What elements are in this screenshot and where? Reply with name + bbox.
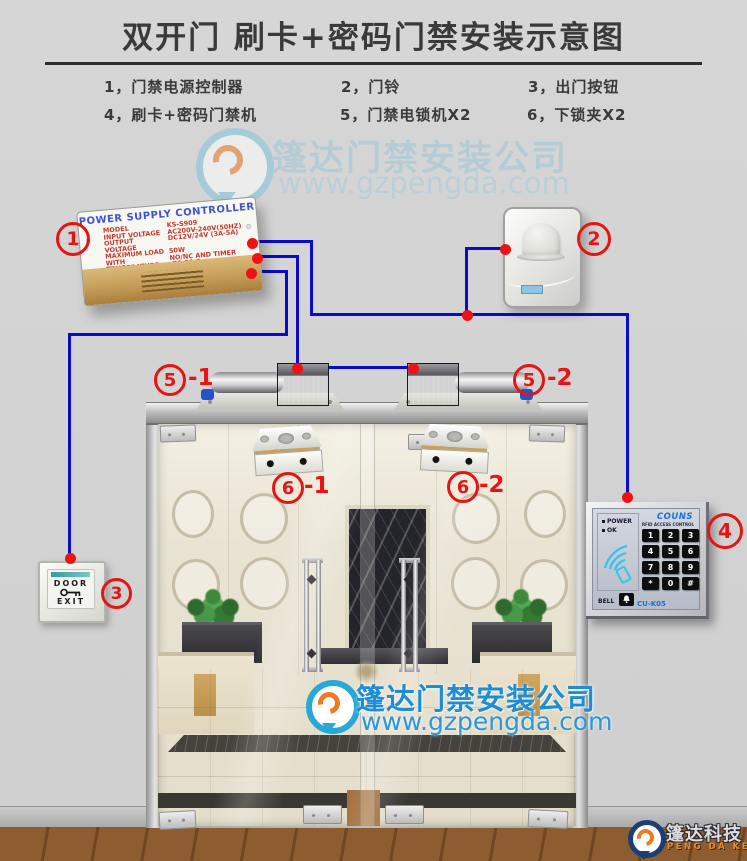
label-1: 1: [56, 222, 90, 256]
wire-doorbell-keypad: [252, 240, 313, 243]
label-6-2-suffix: -2: [479, 472, 505, 498]
glass-corner-patch: [385, 805, 424, 824]
key-3: 3: [682, 529, 699, 542]
clamp-hole: [432, 456, 439, 463]
under-lock-clamp-left: [250, 425, 323, 479]
keypad-reader-zone: POWER OK: [597, 513, 639, 591]
label-3: 3: [101, 578, 132, 609]
label-6-1-suffix: -1: [304, 473, 330, 499]
power-supply-controller: POWER SUPPLY CONTROLLER MODELKS-S909 INP…: [76, 196, 264, 306]
rfid-swipe-icon: [601, 540, 635, 584]
wire-segment: [68, 333, 71, 559]
clamp-hole: [260, 435, 269, 443]
watermark-top: 篷达门禁安装公司 www.gzpengda.com: [188, 126, 608, 200]
wire-segment: [296, 255, 299, 369]
label-5-1: 5: [154, 364, 186, 396]
watermark-url: www.gzpengda.com: [278, 166, 570, 200]
keypad-bell-key: [619, 593, 634, 606]
key-2: 2: [662, 529, 679, 542]
wire-terminal-dot-lock-right: [408, 363, 419, 374]
legend-item-3: 3，出门按钮: [528, 76, 619, 97]
key-9: 9: [682, 561, 699, 574]
key-8: 8: [662, 561, 679, 574]
screw-icon: [208, 400, 212, 404]
clamp-hole: [299, 458, 306, 465]
legend-item-6: 6，下锁夹X2: [527, 104, 626, 125]
bell-base: [517, 253, 565, 261]
wire-segment: [465, 247, 468, 316]
keypad-model: CU-K05: [637, 600, 666, 608]
wire-terminal-dot-doorbell: [500, 244, 511, 255]
clamp-hole: [429, 431, 438, 438]
key-7: 7: [642, 561, 659, 574]
rfid-keypad: POWER OK COUNS RFID ACCESS CONTROL 1 2 3…: [586, 502, 709, 619]
keypad-brand: COUNS: [657, 512, 693, 522]
label-2: 2: [577, 222, 611, 256]
legend-item-1: 1，门禁电源控制器: [104, 76, 243, 97]
wire-terminal-dot: [247, 238, 258, 249]
wire-terminal-dot-keypad: [622, 492, 633, 503]
clamp-hole: [471, 433, 480, 440]
glass-doors-interior: [158, 424, 576, 826]
wall-mirror: [172, 490, 214, 538]
footer-brand: 篷达科技 PENG DA KE JI: [616, 818, 746, 860]
legend-item-2: 2，门铃: [341, 76, 400, 97]
key-5: 5: [662, 545, 679, 558]
screw-icon: [526, 400, 530, 404]
watermark-center: 篷达门禁安装公司 www.gzpengda.com: [306, 676, 596, 740]
title-divider: [45, 62, 702, 65]
wire-terminal-dot-exit: [65, 553, 76, 564]
wire-segment: [310, 240, 313, 316]
keypad-keys: 1 2 3 4 5 6 7 8 9 * 0 #: [642, 529, 702, 593]
wire-segment: [69, 333, 288, 336]
keypad-bell-label: BELL: [598, 598, 614, 605]
bell-icon: [522, 223, 560, 257]
plant: [478, 576, 564, 628]
glass-corner-patch: [528, 809, 569, 829]
clamp-hole: [446, 431, 463, 443]
doorbell-brand-label: [521, 285, 543, 294]
label-4: 4: [707, 513, 743, 549]
glass-corner-patch: [529, 424, 566, 442]
key-6: 6: [682, 545, 699, 558]
glass-corner-patch: [303, 805, 342, 824]
exit-button-strip: [51, 572, 90, 577]
label-5-2-suffix: -2: [547, 365, 573, 391]
clamp-hole: [278, 432, 295, 444]
clamp-hole: [302, 432, 311, 440]
electric-lock-left-cylinder: [210, 372, 284, 393]
under-lock-clamp-right: [418, 423, 490, 476]
ok-indicator: OK: [602, 527, 617, 534]
key-1: 1: [642, 529, 659, 542]
label-5-2: 5: [513, 364, 545, 396]
label-6-2: 6: [447, 471, 479, 503]
keypad-subtitle: RFID ACCESS CONTROL: [642, 522, 694, 527]
exit-exit-label: EXIT: [48, 597, 94, 606]
footer-brand-en: PENG DA KE JI: [667, 842, 747, 852]
wire-segment: [285, 270, 288, 336]
wire-terminal-dot: [252, 253, 263, 264]
clamp-hole: [267, 460, 274, 467]
watermark-url: www.gzpengda.com: [361, 707, 612, 736]
label-5-1-suffix: -1: [188, 365, 214, 391]
label-6-1: 6: [272, 472, 304, 504]
door-handle-left: [316, 560, 321, 672]
glass-corner-patch: [159, 810, 197, 830]
key-icon: [60, 588, 82, 597]
key-hash: #: [682, 577, 699, 590]
wire-locks: [257, 255, 299, 258]
psu-vents: [141, 267, 205, 292]
electric-lock-left-body: [277, 363, 329, 406]
clamp-hole: [465, 458, 472, 465]
exit-button: DOOR EXIT: [38, 561, 106, 623]
installation-diagram: 双开门 刷卡+密码门禁安装示意图 1，门禁电源控制器 2，门铃 3，出门按钮 4…: [0, 0, 747, 861]
exit-button-panel: DOOR EXIT: [47, 569, 95, 609]
wall-mirror: [524, 490, 566, 538]
page-title: 双开门 刷卡+密码门禁安装示意图: [0, 12, 747, 57]
wire-terminal-dot-lock-left: [292, 363, 303, 374]
door-center-gap: [360, 424, 375, 826]
wire-segment: [626, 313, 629, 499]
doorbell: [503, 207, 582, 308]
plant: [170, 576, 256, 628]
door-handle-right: [413, 560, 418, 672]
clamp-front-face: [420, 448, 489, 474]
exit-door-label: DOOR: [48, 579, 94, 588]
column-base: [318, 648, 448, 664]
power-indicator: POWER: [602, 518, 632, 525]
wire-junction-dot: [462, 310, 473, 321]
wire-terminal-dot: [246, 268, 257, 279]
legend-item-4: 4，刷卡+密码门禁机: [104, 104, 257, 125]
keypad-panel: POWER OK COUNS RFID ACCESS CONTROL 1 2 3…: [592, 508, 700, 610]
bell-icon: [622, 595, 631, 604]
key-4: 4: [642, 545, 659, 558]
key-star: *: [642, 577, 659, 590]
glass-corner-patch: [160, 424, 197, 442]
key-0: 0: [662, 577, 679, 590]
legend-item-5: 5，门禁电锁机X2: [340, 104, 471, 125]
